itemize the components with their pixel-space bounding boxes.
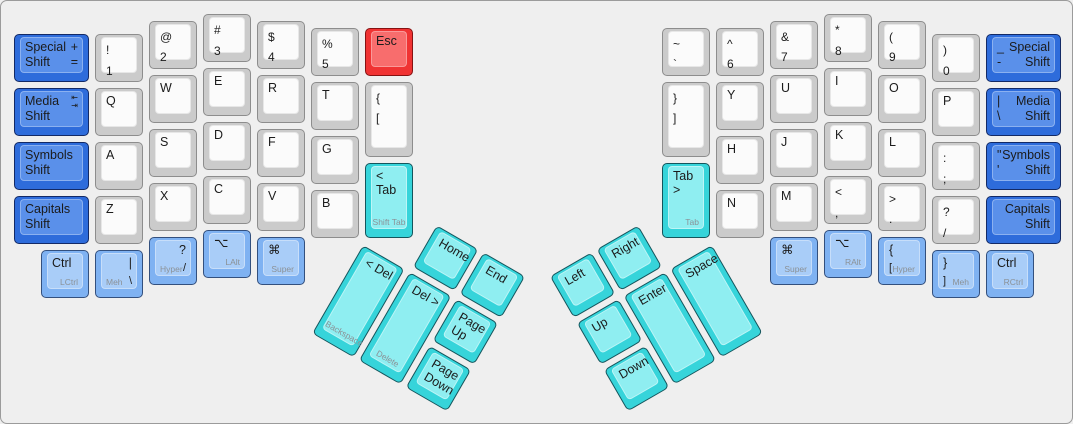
key-top-surface: P	[938, 91, 974, 127]
key-legend: /	[183, 262, 186, 274]
key-top-surface: Down	[610, 351, 659, 400]
key-legend: Up	[589, 314, 610, 335]
key-top-surface: " 'Symbols Shift	[992, 145, 1055, 181]
key-legend: " '	[997, 148, 1001, 178]
key-top-surface: Up	[583, 304, 632, 353]
key-top-surface: * 8	[830, 17, 866, 53]
key-symbols-shift-right[interactable]: " 'Symbols Shift	[986, 142, 1061, 190]
key-9[interactable]: ( 9	[878, 21, 926, 69]
key-8[interactable]: * 8	[824, 14, 872, 62]
key-rbracket-right[interactable]: } ]	[662, 82, 710, 157]
key-legend: ! 1	[106, 40, 113, 81]
key-top-surface: { [	[371, 85, 407, 148]
key-r[interactable]: R	[257, 75, 305, 123]
key-d[interactable]: D	[203, 122, 251, 170]
key-legend: # 3	[214, 20, 221, 61]
key-top-surface: _ -Special Shift	[992, 37, 1055, 73]
key-legend: Symbols Shift	[25, 148, 73, 178]
key-media-shift-left[interactable]: Media Shift⇤ ⇥	[14, 88, 89, 136]
key-top-surface: Tab >Tab	[668, 166, 704, 229]
key-special-shift-left[interactable]: Special Shift+ =	[14, 34, 89, 82]
key-legend: < Tab	[376, 169, 406, 199]
key-legend: B	[322, 196, 330, 211]
key-top-surface: $ 4	[263, 24, 299, 60]
key-top-surface: Left	[556, 257, 605, 306]
key-top-surface: M	[776, 186, 812, 222]
key-media-shift-right[interactable]: | \Media Shift	[986, 88, 1061, 136]
key-3[interactable]: # 3	[203, 14, 251, 62]
key-legend: Symbols Shift	[1002, 148, 1050, 178]
key-q[interactable]: Q	[95, 88, 143, 136]
key-top-surface: S	[155, 132, 191, 168]
key-legend: < Del	[362, 255, 395, 283]
key-top-surface: E	[209, 71, 245, 107]
key-b[interactable]: B	[311, 190, 359, 238]
key-legend: Super	[271, 264, 294, 274]
key-legend: Page Up	[448, 309, 488, 349]
key-legend: }	[943, 256, 947, 271]
key-legend: N	[727, 196, 736, 211]
key-f[interactable]: F	[257, 129, 305, 177]
key-top-surface: ) 0	[938, 37, 974, 73]
key-top-surface: T	[317, 85, 353, 121]
key-legend: Shift Tab	[372, 217, 406, 227]
key-legend: Special Shift	[1009, 40, 1050, 70]
key-top-surface: ⌘Super	[776, 240, 812, 276]
key-top-surface: Q	[101, 91, 137, 127]
key-legend: |	[129, 256, 132, 271]
key-legend: E	[214, 74, 222, 89]
key-top-surface: {[Hyper	[884, 240, 920, 276]
key-legend: Q	[106, 94, 116, 109]
key-legend: Capitals Shift	[1005, 202, 1050, 232]
key-legend: K	[835, 128, 843, 143]
key-super-right[interactable]: ⌘Super	[770, 237, 818, 285]
key-top-surface: N	[722, 193, 758, 229]
key-h[interactable]: H	[716, 136, 764, 184]
key-legend: End	[483, 263, 510, 287]
key-g[interactable]: G	[311, 136, 359, 184]
key-1[interactable]: ! 1	[95, 34, 143, 82]
key-legend: RCtrl	[1004, 277, 1023, 287]
key-legend: M	[781, 189, 791, 204]
key-top-surface: V	[263, 186, 299, 222]
key-top-surface: Z	[101, 199, 137, 235]
key-lctrl[interactable]: CtrlLCtrl	[41, 250, 89, 298]
key-legend: & 7	[781, 27, 789, 68]
key-x[interactable]: X	[149, 183, 197, 231]
key-legend: D	[214, 128, 223, 143]
key-legend: < ,	[835, 182, 842, 223]
key-top-surface: W	[155, 78, 191, 114]
key-6[interactable]: ^ 6	[716, 28, 764, 76]
option-icon: ⌥	[214, 236, 228, 251]
key-m[interactable]: M	[770, 183, 818, 231]
key-top-surface: } ]	[668, 85, 704, 148]
key-top-surface: Esc	[371, 31, 407, 67]
key-top-surface: Capitals Shift	[992, 199, 1055, 235]
key-legend: L	[889, 135, 896, 150]
key-legend: Page Down	[421, 356, 463, 398]
key-legend: Ctrl	[997, 256, 1016, 271]
key-legend: {	[889, 243, 893, 258]
key-lbracket-left[interactable]: { [	[365, 82, 413, 157]
key-top-surface: ⌥LAlt	[209, 233, 245, 269]
key-hyper-right[interactable]: {[Hyper	[878, 237, 926, 285]
key-top-surface: K	[830, 125, 866, 161]
key-top-surface: |Meh\	[101, 253, 137, 289]
key-0[interactable]: ) 0	[932, 34, 980, 82]
key-top-surface: ^ 6	[722, 31, 758, 67]
key-top-surface: ! 1	[101, 37, 137, 73]
key-top-surface: > .	[884, 186, 920, 222]
key-rctrl[interactable]: CtrlRCtrl	[986, 250, 1034, 298]
key-legend: W	[160, 81, 172, 96]
key-legend: Del >	[409, 282, 442, 310]
key-top-surface: End	[469, 257, 518, 306]
key-slash[interactable]: ? /	[932, 196, 980, 244]
key-legend: T	[322, 88, 330, 103]
key-legend: RAlt	[845, 257, 861, 267]
key-top-surface: Media Shift⇤ ⇥	[20, 91, 83, 127]
key-special-shift-right[interactable]: _ -Special Shift	[986, 34, 1061, 82]
key-legend: ^ 6	[727, 34, 734, 75]
key-top-surface: A	[101, 145, 137, 181]
key-top-surface: U	[776, 78, 812, 114]
key-top-surface: Symbols Shift	[20, 145, 83, 181]
option-icon: ⌥	[835, 236, 849, 251]
key-legend: A	[106, 148, 114, 163]
key-top-surface: ( 9	[884, 24, 920, 60]
key-top-surface: < TabShift Tab	[371, 166, 407, 229]
key-semicolon[interactable]: : ;	[932, 142, 980, 190]
key-legend: + =	[71, 40, 78, 70]
key-tab-left[interactable]: < TabShift Tab	[365, 163, 413, 238]
key-legend: Y	[727, 88, 735, 103]
key-legend: Tab	[685, 217, 699, 227]
key-legend: F	[268, 135, 276, 150]
key-p[interactable]: P	[932, 88, 980, 136]
key-top-surface: O	[884, 78, 920, 114]
key-k[interactable]: K	[824, 122, 872, 170]
key-legend: V	[268, 189, 276, 204]
key-legend: : ;	[943, 148, 946, 189]
key-top-surface: ?Hyper/	[155, 240, 191, 276]
key-top-surface: J	[776, 132, 812, 168]
key-legend: C	[214, 182, 223, 197]
key-t[interactable]: T	[311, 82, 359, 130]
key-top-surface: Special Shift+ =	[20, 37, 83, 73]
key-legend: J	[781, 135, 787, 150]
key-legend: Z	[106, 202, 114, 217]
key-legend: Esc	[376, 34, 397, 49]
key-legend: ]	[943, 275, 946, 287]
key-legend: Delete	[370, 345, 404, 371]
key-period[interactable]: > .	[878, 183, 926, 231]
key-w[interactable]: W	[149, 75, 197, 123]
keyboard-layout-canvas: Special Shift+ =Media Shift⇤ ⇥Symbols Sh…	[0, 0, 1073, 424]
key-z[interactable]: Z	[95, 196, 143, 244]
key-legend: Ctrl	[52, 256, 71, 271]
key-legend: } ]	[673, 88, 677, 129]
key-top-surface: CtrlRCtrl	[992, 253, 1028, 289]
key-legend: H	[727, 142, 736, 157]
key-5[interactable]: % 5	[311, 28, 359, 76]
key-legend: R	[268, 81, 277, 96]
key-legend: P	[943, 94, 951, 109]
key-legend: Super	[784, 264, 807, 274]
key-top-surface: < ,	[830, 179, 866, 215]
key-legend: G	[322, 142, 332, 157]
key-7[interactable]: & 7	[770, 21, 818, 69]
key-top-surface: : ;	[938, 145, 974, 181]
key-top-surface: Home	[423, 230, 472, 279]
key-super-left[interactable]: ⌘Super	[257, 237, 305, 285]
key-top-surface: ⌘Super	[263, 240, 299, 276]
key-legend: > .	[889, 189, 896, 230]
key-top-surface: }]Meh	[938, 253, 974, 289]
key-top-surface: # 3	[209, 17, 245, 53]
key-legend: | \	[997, 94, 1000, 124]
key-2[interactable]: @ 2	[149, 21, 197, 69]
key-legend: Home	[436, 236, 472, 265]
key-top-surface: Capitals Shift	[20, 199, 83, 235]
key-lalt[interactable]: ⌥LAlt	[203, 230, 251, 278]
key-top-surface: Page Down	[415, 351, 464, 400]
key-top-surface: L	[884, 132, 920, 168]
key-symbols-shift-left[interactable]: Symbols Shift	[14, 142, 89, 190]
key-legend: ~ `	[673, 34, 680, 75]
key-legend: LCtrl	[60, 277, 78, 287]
key-legend: X	[160, 189, 168, 204]
key-legend: * 8	[835, 20, 842, 61]
key-top-surface: Page Up	[442, 304, 491, 353]
key-v[interactable]: V	[257, 183, 305, 231]
key-legend: Meh	[952, 277, 969, 287]
key-legend: \	[129, 275, 132, 287]
key-legend: Right	[609, 234, 642, 261]
key-legend: Meh	[106, 277, 123, 287]
key-legend: Media Shift	[1016, 94, 1050, 124]
key-y[interactable]: Y	[716, 82, 764, 130]
key-legend: Hyper	[160, 264, 183, 274]
key-legend: Media Shift	[25, 94, 59, 124]
key-legend: $ 4	[268, 27, 275, 68]
key-legend: Down	[616, 353, 651, 382]
key-tilde[interactable]: ~ `	[662, 28, 710, 76]
key-capitals-shift-right[interactable]: Capitals Shift	[986, 196, 1061, 244]
key-top-surface: CtrlLCtrl	[47, 253, 83, 289]
key-top-surface: D	[209, 125, 245, 161]
key-ralt[interactable]: ⌥RAlt	[824, 230, 872, 278]
key-legend: ) 0	[943, 40, 950, 81]
key-l[interactable]: L	[878, 129, 926, 177]
key-meh-right[interactable]: }]Meh	[932, 250, 980, 298]
command-icon: ⌘	[781, 243, 794, 258]
key-legend: Backspace	[324, 318, 358, 344]
key-n[interactable]: N	[716, 190, 764, 238]
key-legend: Special Shift	[25, 40, 66, 70]
key-meh-left[interactable]: |Meh\	[95, 250, 143, 298]
key-top-surface: I	[830, 71, 866, 107]
key-legend: ( 9	[889, 27, 896, 68]
key-top-surface: @ 2	[155, 24, 191, 60]
key-esc[interactable]: Esc	[365, 28, 413, 76]
key-legend: { [	[376, 88, 380, 129]
key-legend: I	[835, 74, 838, 89]
tab-arrows-icon: ⇤ ⇥	[71, 94, 78, 109]
key-top-surface: | \Media Shift	[992, 91, 1055, 127]
key-top-surface: F	[263, 132, 299, 168]
key-legend: Hyper	[892, 264, 915, 274]
key-legend: _ -	[997, 40, 1004, 70]
key-top-surface: B	[317, 193, 353, 229]
key-top-surface: ? /	[938, 199, 974, 235]
key-legend: U	[781, 81, 790, 96]
key-4[interactable]: $ 4	[257, 21, 305, 69]
key-i[interactable]: I	[824, 68, 872, 116]
key-legend: Space	[683, 251, 721, 282]
key-a[interactable]: A	[95, 142, 143, 190]
key-legend: Left	[562, 265, 587, 288]
key-j[interactable]: J	[770, 129, 818, 177]
key-legend: LAlt	[225, 257, 240, 267]
key-legend: % 5	[322, 34, 333, 75]
command-icon: ⌘	[268, 243, 281, 258]
key-top-surface: Y	[722, 85, 758, 121]
key-hyper-left[interactable]: ?Hyper/	[149, 237, 197, 285]
key-c[interactable]: C	[203, 176, 251, 224]
key-u[interactable]: U	[770, 75, 818, 123]
key-comma[interactable]: < ,	[824, 176, 872, 224]
key-top-surface: R	[263, 78, 299, 114]
key-top-surface: H	[722, 139, 758, 175]
key-legend: O	[889, 81, 899, 96]
key-top-surface: G	[317, 139, 353, 175]
key-legend: ? /	[943, 202, 950, 243]
key-top-surface: Right	[603, 230, 652, 279]
key-top-surface: C	[209, 179, 245, 215]
key-top-surface: % 5	[317, 31, 353, 67]
key-top-surface: X	[155, 186, 191, 222]
key-top-surface: & 7	[776, 24, 812, 60]
key-top-surface: ⌥RAlt	[830, 233, 866, 269]
key-legend: Capitals Shift	[25, 202, 70, 232]
key-capitals-shift-left[interactable]: Capitals Shift	[14, 196, 89, 244]
key-legend: @ 2	[160, 27, 172, 68]
key-tab-right[interactable]: Tab >Tab	[662, 163, 710, 238]
key-legend: Enter	[636, 280, 669, 308]
key-e[interactable]: E	[203, 68, 251, 116]
key-legend: S	[160, 135, 168, 150]
key-s[interactable]: S	[149, 129, 197, 177]
key-legend: Tab >	[673, 169, 703, 199]
key-top-surface: ~ `	[668, 31, 704, 67]
key-legend: ?	[179, 243, 186, 258]
key-o[interactable]: O	[878, 75, 926, 123]
